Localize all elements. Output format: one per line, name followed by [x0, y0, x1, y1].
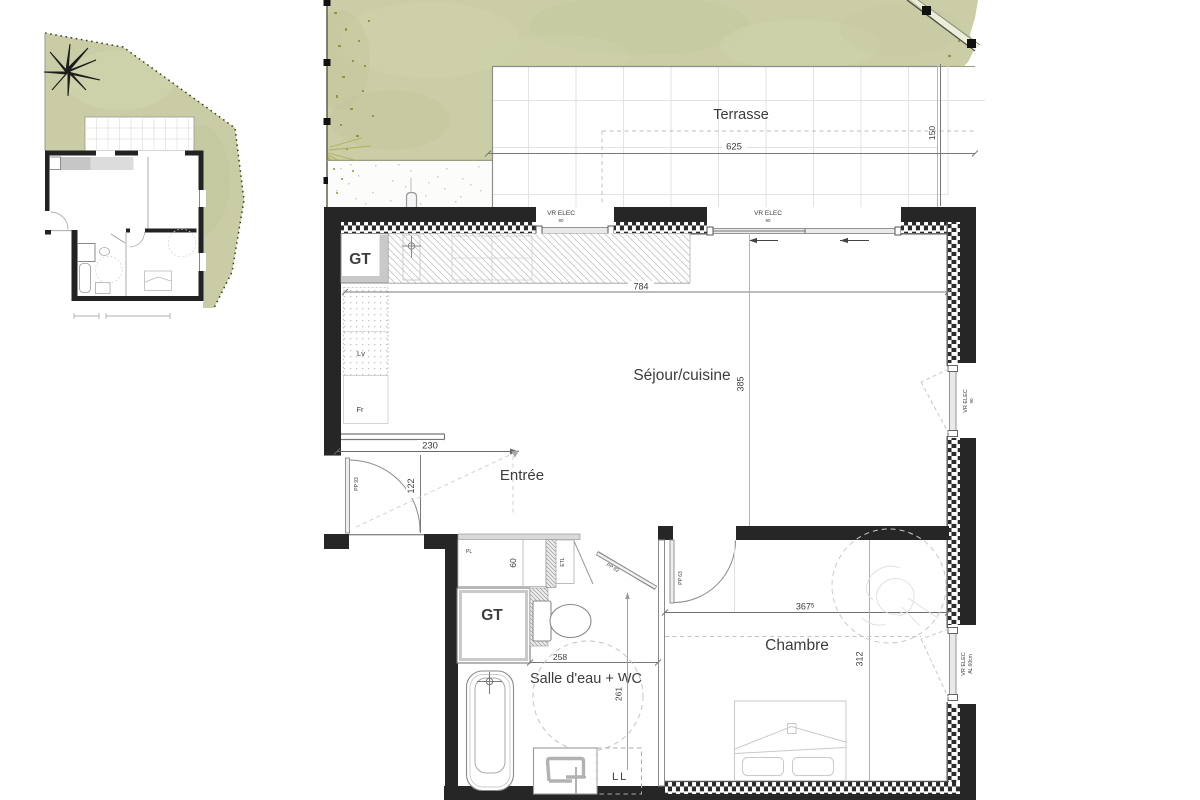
svg-text:261: 261 — [614, 687, 624, 701]
svg-text:PP 93: PP 93 — [354, 477, 360, 491]
svg-text:GT: GT — [349, 251, 371, 268]
svg-text:AL 60cm: AL 60cm — [968, 654, 974, 674]
svg-text:150: 150 — [927, 126, 937, 140]
svg-text:Terrasse: Terrasse — [713, 107, 769, 123]
svg-text:Séjour/cuisine: Séjour/cuisine — [633, 367, 730, 384]
svg-text:Entrée: Entrée — [500, 467, 544, 484]
svg-text:90: 90 — [558, 218, 564, 223]
svg-text:258: 258 — [553, 652, 567, 662]
svg-text:312: 312 — [855, 651, 865, 666]
svg-text:VR ELEC: VR ELEC — [547, 210, 575, 217]
svg-text:90: 90 — [765, 218, 771, 223]
svg-text:PP 63: PP 63 — [678, 571, 684, 585]
svg-text:GT: GT — [481, 607, 503, 624]
svg-text:784: 784 — [633, 282, 648, 292]
svg-text:Salle d'eau + WC: Salle d'eau + WC — [530, 671, 642, 687]
svg-text:VR ELEC: VR ELEC — [754, 210, 782, 217]
svg-text:90: 90 — [969, 398, 974, 404]
svg-text:385: 385 — [736, 376, 746, 391]
svg-text:PL: PL — [466, 549, 472, 555]
svg-text:625: 625 — [726, 142, 742, 153]
svg-text:Fr: Fr — [356, 405, 364, 414]
svg-text:Chambre: Chambre — [765, 637, 829, 654]
svg-text:LL: LL — [612, 771, 628, 783]
svg-text:122: 122 — [406, 478, 416, 493]
svg-text:VR ELEC: VR ELEC — [961, 652, 967, 676]
svg-text:230: 230 — [422, 441, 438, 452]
svg-text:ETL: ETL — [560, 557, 566, 566]
svg-text:Lv: Lv — [357, 349, 365, 358]
svg-text:60: 60 — [508, 558, 518, 568]
